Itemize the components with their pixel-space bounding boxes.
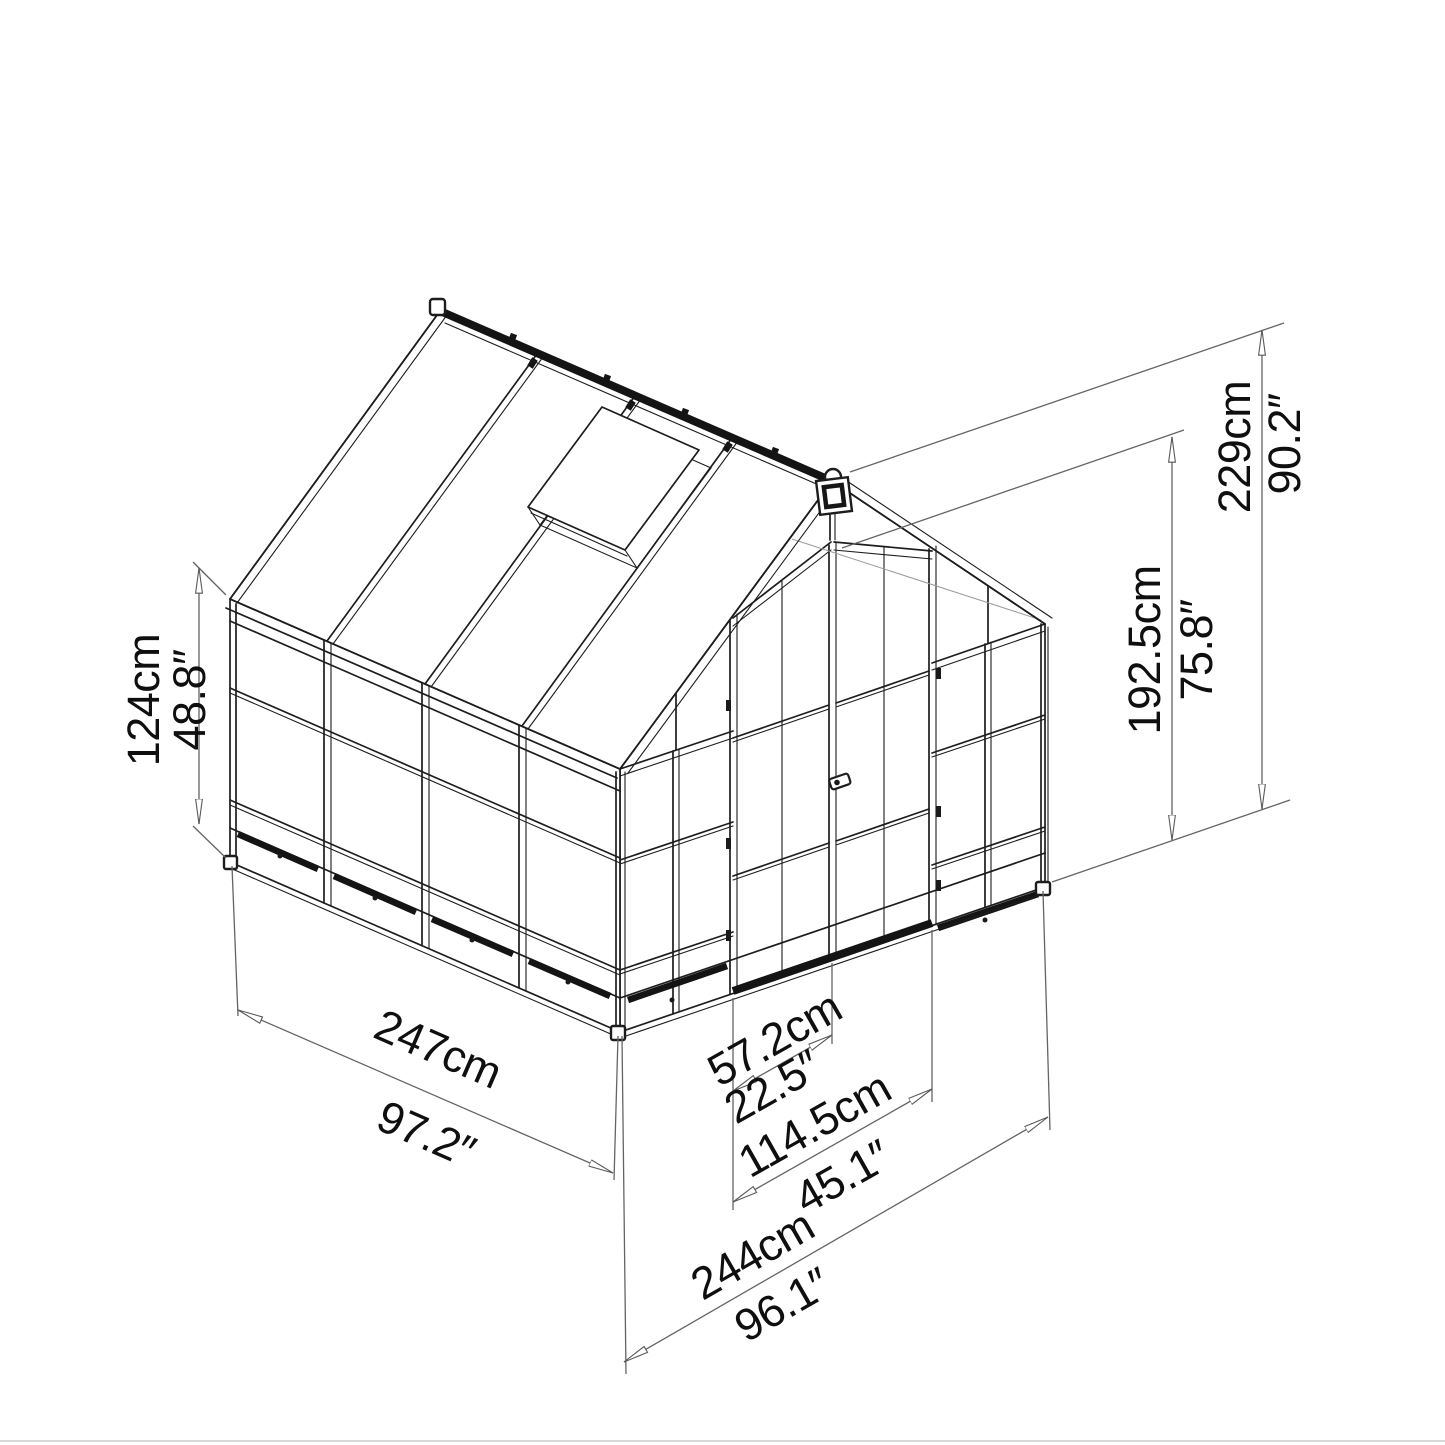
ridge-height-cm-label: 229cm: [1209, 381, 1260, 514]
ridge-height-in-label: 90.2″: [1259, 393, 1310, 495]
dimension-side-wall-height: 124cm 48.8″: [118, 562, 226, 858]
gable-vent: [816, 477, 852, 515]
side-wall-height-in-label: 48.8″: [164, 649, 215, 751]
depth-cm-label: 247cm: [367, 999, 509, 1099]
side-wall-height-cm-label: 124cm: [118, 634, 169, 767]
diagram-canvas: 124cm 48.8″ 229cm 90.2″ 192.5cm 75.8″ 24…: [0, 0, 1445, 1445]
depth-in-label: 97.2″: [370, 1090, 483, 1177]
door-height-in-label: 75.8″: [1171, 599, 1222, 701]
door-height-cm-label: 192.5cm: [1119, 565, 1170, 734]
ridge-end-cap: [430, 299, 445, 315]
greenhouse-dimension-diagram: 124cm 48.8″ 229cm 90.2″ 192.5cm 75.8″ 24…: [0, 0, 1445, 1445]
